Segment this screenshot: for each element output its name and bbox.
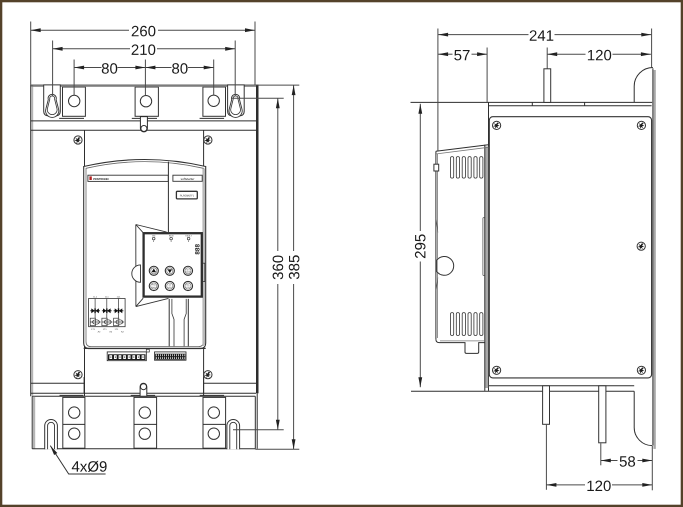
svg-text:888: 888 [195, 244, 202, 255]
svg-text:MODE: MODE [185, 271, 191, 274]
svg-text:RUN: RUN [169, 235, 174, 238]
svg-text:PLROM(TF): PLROM(TF) [180, 195, 194, 198]
svg-text:softstarter: softstarter [181, 177, 195, 181]
svg-text:PENTRONIC: PENTRONIC [93, 178, 109, 181]
svg-text:FAULT: FAULT [185, 235, 192, 238]
svg-text:ON: ON [152, 235, 156, 238]
